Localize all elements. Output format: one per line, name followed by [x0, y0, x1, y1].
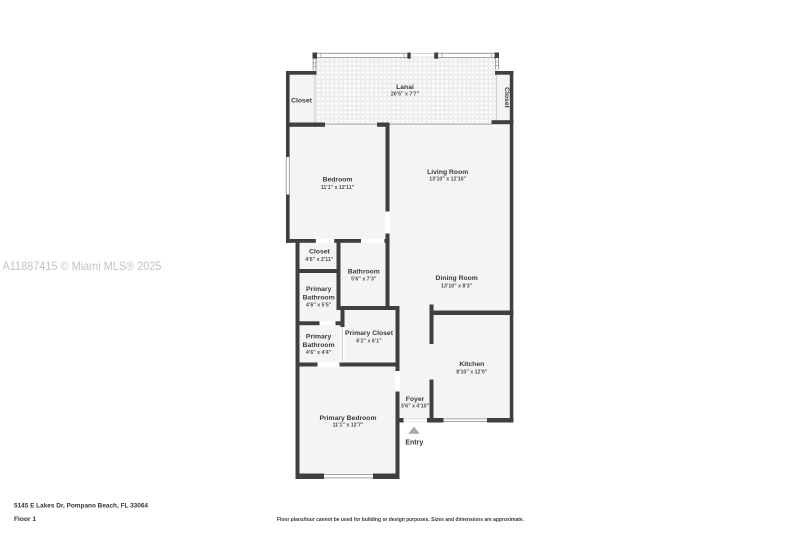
svg-text:Floor plans/tour cannot be use: Floor plans/tour cannot be used for buil…	[277, 517, 525, 523]
svg-text:Primary Bedroom: Primary Bedroom	[319, 415, 376, 422]
svg-text:Closet: Closet	[309, 249, 331, 256]
svg-text:Dining Room: Dining Room	[436, 275, 478, 282]
svg-text:6’2” x 6’1”: 6’2” x 6’1”	[356, 339, 382, 345]
svg-text:11’1” x 12’11”: 11’1” x 12’11”	[321, 185, 355, 191]
svg-text:4’6” x 5’5”: 4’6” x 5’5”	[306, 303, 332, 309]
svg-text:3’6” x 4’10”: 3’6” x 4’10”	[401, 403, 430, 409]
svg-text:Bedroom: Bedroom	[323, 176, 353, 183]
svg-text:A11887415 © Miami MLS® 2025: A11887415 © Miami MLS® 2025	[3, 260, 162, 273]
svg-text:5145 E Lakes Dr, Pompano Beach: 5145 E Lakes Dr, Pompano Beach, FL 33064	[14, 502, 148, 509]
svg-text:11’1” x 12’7”: 11’1” x 12’7”	[333, 423, 364, 429]
svg-text:4’6” x 4’4”: 4’6” x 4’4”	[306, 350, 332, 356]
svg-text:4’6” x 2’11”: 4’6” x 2’11”	[305, 257, 333, 263]
svg-text:8’10” x 12’0”: 8’10” x 12’0”	[456, 369, 488, 375]
svg-text:Primary Closet: Primary Closet	[345, 330, 394, 337]
svg-text:Lanai: Lanai	[396, 84, 414, 91]
svg-text:Primary: Primary	[306, 333, 332, 340]
svg-text:Floor 1: Floor 1	[14, 516, 36, 523]
svg-text:Bathroom: Bathroom	[303, 342, 335, 349]
svg-text:13’10” x 8’3”: 13’10” x 8’3”	[441, 284, 473, 290]
svg-text:Living Room: Living Room	[427, 169, 468, 176]
svg-text:Bathroom: Bathroom	[303, 294, 335, 301]
svg-text:20’5” x 7’7”: 20’5” x 7’7”	[391, 92, 420, 98]
svg-text:13’10” x 12’10”: 13’10” x 12’10”	[429, 177, 466, 183]
svg-text:Bathroom: Bathroom	[348, 268, 380, 275]
svg-text:Closet: Closet	[291, 97, 313, 104]
svg-text:Entry: Entry	[405, 440, 423, 447]
svg-text:5’6” x 7’3”: 5’6” x 7’3”	[351, 277, 377, 283]
svg-text:Foyer: Foyer	[406, 396, 425, 403]
svg-text:Closet: Closet	[503, 87, 510, 109]
svg-text:Primary: Primary	[306, 286, 332, 293]
svg-text:Kitchen: Kitchen	[459, 361, 484, 368]
